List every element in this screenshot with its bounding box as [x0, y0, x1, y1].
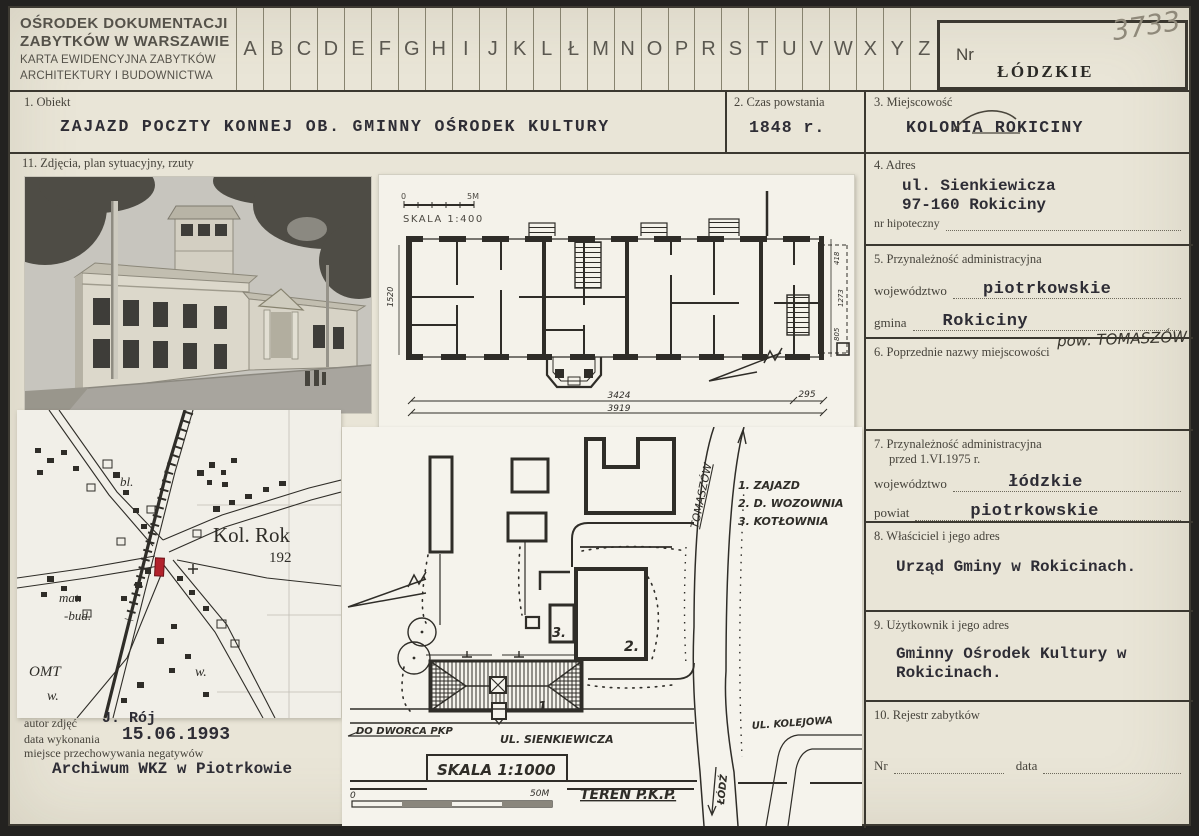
alphabet-letter: W	[829, 8, 856, 90]
alphabet-letter: F	[371, 8, 398, 90]
map-label-bl: bl.	[120, 474, 133, 489]
alphabet-letter: Ł	[560, 8, 587, 90]
map-label-omt: OMT	[29, 664, 62, 680]
site-plan-num-2: 2.	[624, 639, 639, 655]
uzytkownik-line2: Rokicinach.	[896, 664, 1181, 682]
site-plan-num-1: 1.	[538, 700, 552, 715]
alphabet-letter: C	[290, 8, 317, 90]
alphabet-letter: I	[452, 8, 479, 90]
topographic-map-image: bl. Kol. Rok 192 mat. -bud. OMT w. w.	[17, 410, 341, 718]
floor-plan-dim-418: 418	[833, 251, 841, 265]
site-plan-street-dworzec: DO DWORCA PKP	[356, 726, 453, 737]
photo-credits: autor zdjęć J. Rój data wykonania 15.06.…	[10, 710, 344, 790]
rejestr-data-blank	[1043, 753, 1181, 774]
floor-plan-dim-3424: 3424	[608, 391, 631, 401]
credit-date-label: data wykonania	[24, 732, 100, 746]
outbuilding-long	[430, 457, 452, 552]
site-plan-scale-end: 50M	[530, 789, 549, 799]
rejestr-nr-blank	[894, 753, 1004, 774]
uzytkownik-line1: Gminny Ośrodek Kultury w	[896, 645, 1181, 663]
rejestr-data-label: data	[1016, 758, 1038, 774]
alphabet-letter: K	[506, 8, 533, 90]
credit-author-label: autor zdjęć	[24, 716, 77, 730]
card-type-line2: ARCHITEKTURY I BUDOWNICTWA	[20, 69, 236, 83]
wojewodztwo-value: piotrkowskie	[983, 280, 1111, 299]
gmina-line: Rokiciny	[913, 310, 1182, 331]
floor-plan-drawing: 0 5M SKALA 1:400	[378, 174, 855, 428]
alphabet-letter: Y	[883, 8, 910, 90]
section-uzytkownik: 9. Użytkownik i jego adres Gminny Ośrode…	[864, 612, 1193, 702]
section-adres: 4. Adres ul. Sienkiewicza 97-160 Rokicin…	[864, 152, 1193, 246]
alphabet-letter: P	[668, 8, 695, 90]
powiat-value: piotrkowskie	[970, 502, 1098, 521]
alphabet-letter: X	[856, 8, 883, 90]
alphabet-letter: R	[694, 8, 721, 90]
map-label-mat: mat.	[59, 590, 82, 605]
building-zajazd	[430, 661, 582, 724]
floor-plan-scale-end: 5M	[467, 192, 479, 201]
alphabet-letter: H	[425, 8, 452, 90]
field-czas-value: 1848 r.	[749, 118, 825, 137]
building-photo	[24, 176, 372, 414]
floor-plan-dim-left: 1520	[386, 287, 395, 307]
field-czas-label: 2. Czas powstania	[734, 95, 825, 110]
section-przynaleznosc-label: 5. Przynależność administracyjna	[874, 252, 1181, 267]
site-plan-drawing: TOMASZÓW 1. ZAJAZD 2. D. WOZOWNIA 3. KOT…	[342, 427, 862, 826]
alphabet-letter: N	[614, 8, 641, 90]
section-uzytkownik-label: 9. Użytkownik i jego adres	[874, 618, 1181, 633]
site-plan-road-lodz: ŁÓDŹ	[714, 773, 730, 806]
section-rejestr-label: 10. Rejestr zabytków	[874, 708, 1181, 723]
site-plan-area-pkp: TEREN P.K.P.	[580, 787, 676, 803]
building-photo-image	[25, 177, 371, 413]
section-rejestr: 10. Rejestr zabytków Nr data	[864, 702, 1193, 828]
wojewodztwo-label: województwo	[874, 283, 947, 299]
card-number-handwritten: 3733	[1110, 6, 1183, 47]
alphabet-letter: G	[398, 8, 425, 90]
alphabet-letter: T	[748, 8, 775, 90]
site-plan-num-3: 3.	[552, 626, 566, 641]
powiat-line: piotrkowskie	[915, 500, 1181, 521]
alphabet-letter: B	[263, 8, 290, 90]
floor-plan-image: 0 5M SKALA 1:400	[379, 175, 854, 427]
north-arrow	[709, 348, 782, 381]
wojewodztwo-1975-label: województwo	[874, 476, 947, 492]
credit-negatives-label: miejsce przechowywania negatywów	[24, 746, 203, 761]
section-wlasciciel: 8. Właściciel i jego adres Urząd Gminy w…	[864, 523, 1193, 612]
credit-negatives-value: Archiwum WKZ w Piotrkowie	[52, 760, 292, 778]
field-czas-powstania: 2. Czas powstania 1848 r.	[725, 90, 864, 152]
adres-line2: 97-160 Rokiciny	[902, 196, 1181, 214]
wojewodztwo-1975-value: łódzkie	[1008, 473, 1083, 492]
section-adres-label: 4. Adres	[874, 158, 1181, 173]
rejestr-nr-label: Nr	[874, 758, 888, 774]
alphabet-letter: U	[775, 8, 802, 90]
alphabet-letter: M	[587, 8, 614, 90]
field-obiekt-value: ZAJAZD POCZTY KONNEJ OB. GMINNY OŚRODEK …	[60, 117, 610, 136]
map-label-bud: -bud.	[64, 608, 91, 623]
section-1975-label-line2: przed 1.VI.1975 r.	[889, 452, 1181, 467]
map-label-w2: w.	[195, 665, 207, 680]
site-plan-scale-label: SKALA 1:1000	[437, 761, 556, 779]
alphabet-strip: A B C D E F G H I J K L Ł M N O P R S T …	[236, 8, 937, 90]
north-arrow	[348, 572, 426, 607]
field-obiekt: 1. Obiekt ZAJAZD POCZTY KONNEJ OB. GMINN…	[10, 90, 725, 152]
voivodeship-stamp: ŁÓDZKIE	[940, 62, 1151, 82]
section-przynaleznosc: 5. Przynależność administracyjna wojewód…	[864, 246, 1193, 339]
wojewodztwo-1975-line: łódzkie	[953, 471, 1181, 492]
floor-plan-scale-zero: 0	[401, 192, 406, 201]
site-plan-legend-3: 3. KOTŁOWNIA	[738, 515, 829, 528]
section-przynaleznosc-1975: 7. Przynależność administracyjna przed 1…	[864, 431, 1193, 523]
topographic-map: bl. Kol. Rok 192 mat. -bud. OMT w. w.	[17, 410, 341, 718]
alphabet-letter: D	[317, 8, 344, 90]
site-plan-street-sienkiewicza: UL. SIENKIEWICZA	[500, 733, 614, 746]
alphabet-letter: A	[236, 8, 263, 90]
nr-hipoteczny-label: nr hipoteczny	[874, 216, 940, 231]
alphabet-letter: J	[479, 8, 506, 90]
wlasciciel-value: Urząd Gminy w Rokicinach.	[896, 558, 1181, 576]
floor-plan-scale-label: SKALA 1:400	[403, 214, 484, 225]
site-plan-road-tomaszow: TOMASZÓW	[688, 461, 715, 530]
site-plan-image: TOMASZÓW 1. ZAJAZD 2. D. WOZOWNIA 3. KOT…	[342, 427, 862, 826]
floor-plan-dim-3919: 3919	[608, 404, 631, 414]
alphabet-letter: E	[344, 8, 371, 90]
floor-plan-dim-805: 805	[833, 327, 841, 341]
section-wlasciciel-label: 8. Właściciel i jego adres	[874, 529, 1181, 544]
map-label-kol-rok: Kol. Rok	[213, 523, 291, 547]
card-type-line1: KARTA EWIDENCYJNA ZABYTKÓW	[20, 53, 236, 67]
site-plan-legend-2: 2. D. WOZOWNIA	[738, 497, 844, 510]
alphabet-letter: V	[802, 8, 829, 90]
site-plan-street-kolejowa: UL. KOLEJOWA	[751, 715, 833, 732]
nr-hipoteczny-blank	[946, 218, 1181, 231]
field-zdjecia-label: 11. Zdjęcia, plan sytuacyjny, rzuty	[22, 156, 194, 171]
handwritten-transposition-mark	[950, 104, 1024, 134]
card-number-box: Nr ŁÓDZKIE 3733	[937, 20, 1188, 90]
site-plan-legend-1: 1. ZAJAZD	[738, 479, 800, 492]
alphabet-letter: Z	[910, 8, 937, 90]
adres-line1: ul. Sienkiewicza	[902, 177, 1181, 195]
org-name-line2: ZABYTKÓW W WARSZAWIE	[20, 33, 236, 51]
right-column: 4. Adres ul. Sienkiewicza 97-160 Rokicin…	[864, 152, 1193, 828]
org-name-line1: OŚRODEK DOKUMENTACJI	[20, 15, 236, 33]
heritage-record-card: OŚRODEK DOKUMENTACJI ZABYTKÓW W WARSZAWI…	[8, 6, 1191, 826]
field-miejscowosc: 3. Miejscowość KOLONIA ROKICINY	[864, 90, 1193, 152]
map-label-w1: w.	[47, 689, 59, 704]
church-cross-symbol	[188, 564, 198, 574]
alphabet-letter: O	[641, 8, 668, 90]
building-c-shaped	[586, 439, 674, 513]
credit-date-value: 15.06.1993	[122, 725, 230, 745]
field-obiekt-label: 1. Obiekt	[24, 95, 71, 110]
floor-plan-dim-1273: 1273	[837, 289, 845, 307]
section-poprzednie-nazwy: 6. Poprzednie nazwy miejscowości	[864, 339, 1193, 431]
floor-plan-dim-295: 295	[798, 390, 815, 400]
gmina-value: Rokiciny	[943, 312, 1029, 331]
org-header: OŚRODEK DOKUMENTACJI ZABYTKÓW W WARSZAWI…	[20, 15, 236, 83]
gmina-label: gmina	[874, 315, 907, 331]
outbuilding-square-2	[508, 513, 546, 541]
alphabet-letter: S	[721, 8, 748, 90]
map-label-192: 192	[269, 550, 292, 566]
site-plan-scale-zero: 0	[350, 791, 356, 801]
subject-building-marker	[155, 558, 165, 576]
wojewodztwo-line: piotrkowskie	[953, 278, 1181, 299]
field-miejscowosc-label: 3. Miejscowość	[874, 95, 952, 110]
section-1975-label-line1: 7. Przynależność administracyjna	[874, 437, 1181, 452]
alphabet-letter: L	[533, 8, 560, 90]
outbuilding-square-1	[512, 459, 548, 492]
scanned-card-page: OŚRODEK DOKUMENTACJI ZABYTKÓW W WARSZAWI…	[0, 0, 1199, 836]
powiat-label: powiat	[874, 505, 909, 521]
